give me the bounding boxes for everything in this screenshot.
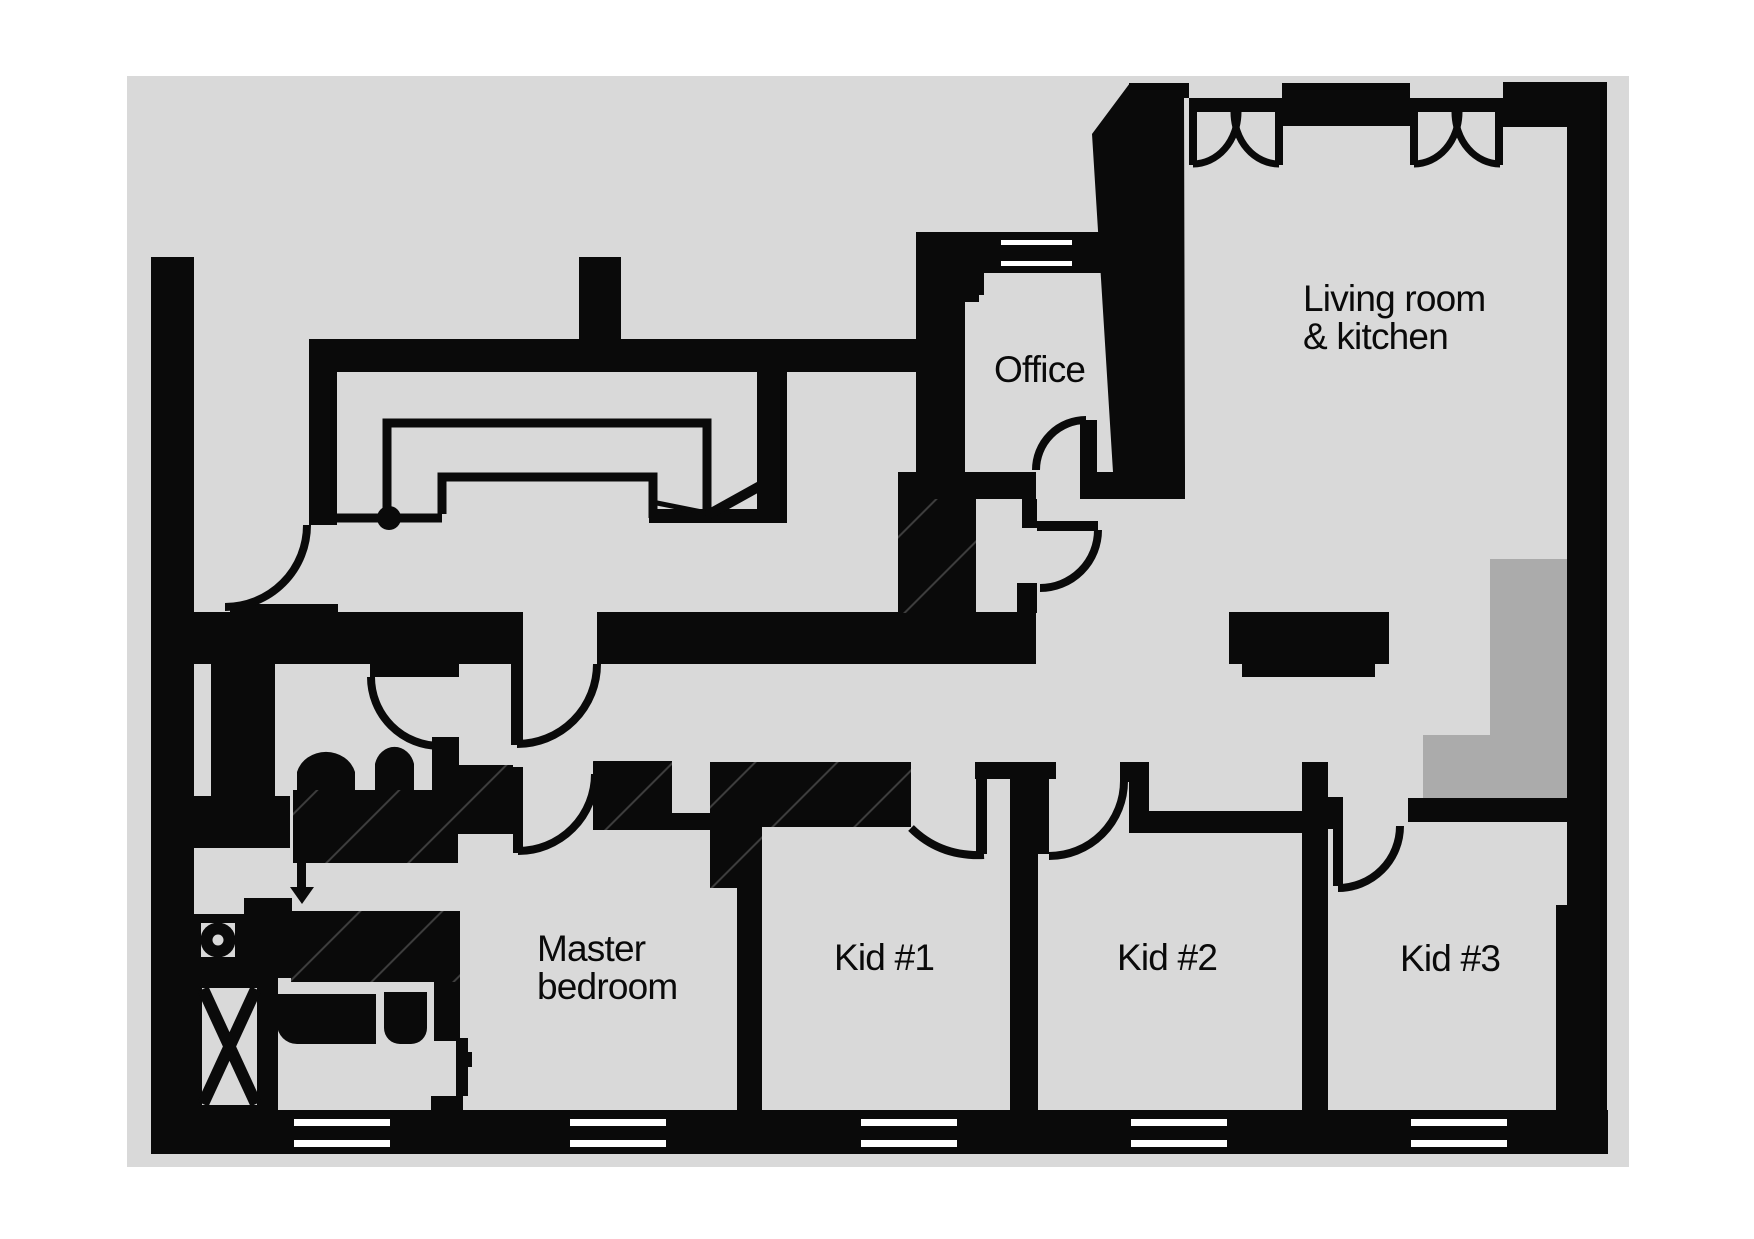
svg-text:Office: Office	[994, 349, 1085, 390]
svg-text:Kid #3: Kid #3	[1400, 938, 1500, 979]
svg-text:Kid #2: Kid #2	[1117, 937, 1217, 978]
svg-text:Living room: Living room	[1303, 278, 1485, 319]
svg-text:Kid #1: Kid #1	[834, 937, 934, 978]
svg-text:Master: Master	[537, 928, 646, 969]
svg-text:bedroom: bedroom	[537, 966, 677, 1007]
svg-text:& kitchen: & kitchen	[1303, 316, 1448, 357]
